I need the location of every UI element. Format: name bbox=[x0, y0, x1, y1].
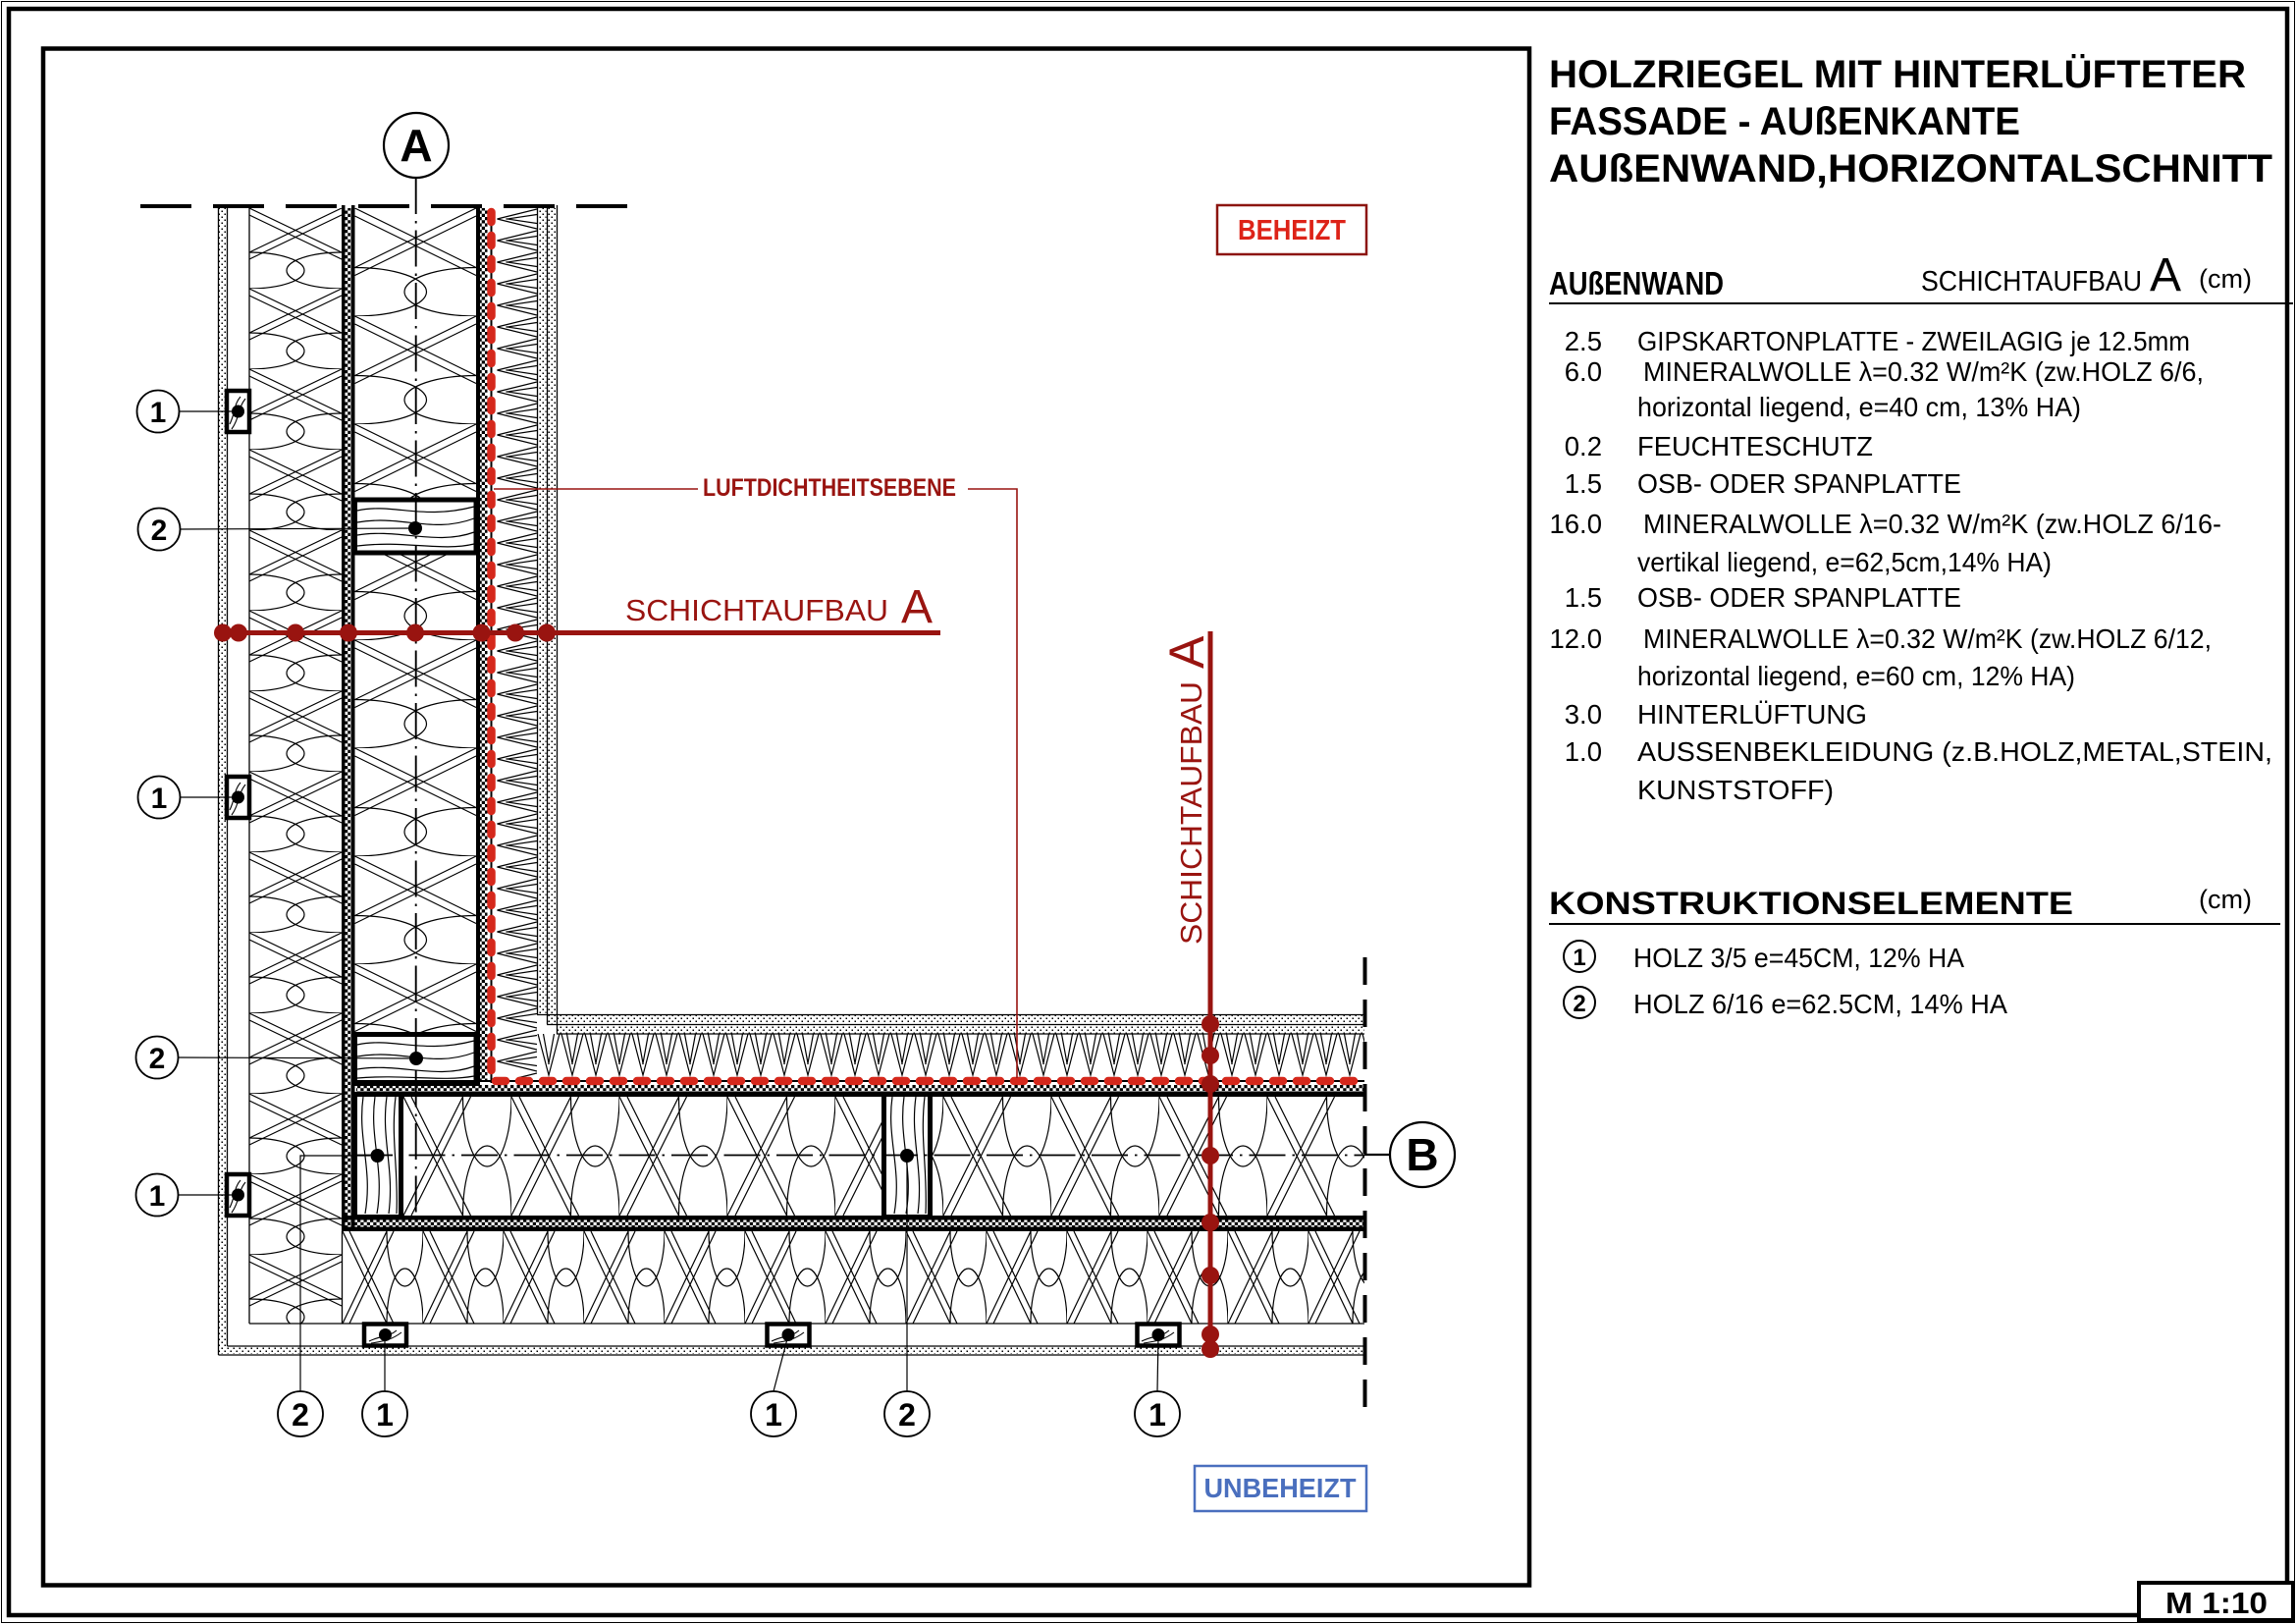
svg-text:OSB- ODER SPANPLATTE: OSB- ODER SPANPLATTE bbox=[1637, 468, 1961, 499]
svg-text:16.0: 16.0 bbox=[1549, 509, 1602, 539]
svg-text:horizontal liegend, e=40 cm, 1: horizontal liegend, e=40 cm, 13% HA) bbox=[1637, 392, 2081, 422]
svg-text:AUSSENBEKLEIDUNG (z.B.HOLZ,MET: AUSSENBEKLEIDUNG (z.B.HOLZ,METAL,STEIN, bbox=[1637, 736, 2272, 767]
svg-text:KUNSTSTOFF): KUNSTSTOFF) bbox=[1637, 775, 1834, 805]
svg-text:A: A bbox=[2150, 249, 2181, 301]
svg-text:AUßENWAND,HORIZONTALSCHNITT: AUßENWAND,HORIZONTALSCHNITT bbox=[1549, 147, 2272, 190]
svg-text:2: 2 bbox=[898, 1397, 916, 1433]
svg-text:vertikal liegend, e=62,5cm,14%: vertikal liegend, e=62,5cm,14% HA) bbox=[1637, 547, 2052, 577]
svg-text:SCHICHTAUFBAU: SCHICHTAUFBAU bbox=[1921, 266, 2142, 298]
svg-text:1: 1 bbox=[765, 1397, 782, 1433]
svg-text:1: 1 bbox=[376, 1397, 394, 1433]
svg-text:A: A bbox=[1159, 635, 1214, 669]
svg-text:A: A bbox=[901, 581, 933, 633]
svg-text:(cm): (cm) bbox=[2199, 264, 2252, 294]
svg-text:SCHICHTAUFBAU: SCHICHTAUFBAU bbox=[1174, 681, 1208, 945]
svg-text:2: 2 bbox=[151, 514, 168, 547]
svg-text:0.2: 0.2 bbox=[1565, 431, 1602, 461]
svg-text:2: 2 bbox=[149, 1043, 166, 1075]
svg-text:1.0: 1.0 bbox=[1565, 736, 1602, 767]
svg-text:UNBEHEIZT: UNBEHEIZT bbox=[1204, 1473, 1357, 1503]
svg-text:HOLZ 3/5 e=45CM, 12% HA: HOLZ 3/5 e=45CM, 12% HA bbox=[1633, 943, 1965, 973]
svg-text:12.0: 12.0 bbox=[1549, 623, 1602, 654]
svg-text:3.0: 3.0 bbox=[1565, 699, 1602, 730]
svg-text:FEUCHTESCHUTZ: FEUCHTESCHUTZ bbox=[1637, 431, 1873, 461]
svg-text:OSB- ODER SPANPLATTE: OSB- ODER SPANPLATTE bbox=[1637, 582, 1961, 613]
svg-text:LUFTDICHTHEITSEBENE: LUFTDICHTHEITSEBENE bbox=[703, 474, 956, 502]
svg-text:1: 1 bbox=[1148, 1397, 1166, 1433]
svg-text:AUßENWAND: AUßENWAND bbox=[1549, 265, 1724, 301]
svg-text:SCHICHTAUFBAU: SCHICHTAUFBAU bbox=[625, 593, 888, 627]
svg-text:2.5: 2.5 bbox=[1565, 326, 1602, 356]
svg-text:KONSTRUKTIONSELEMENTE: KONSTRUKTIONSELEMENTE bbox=[1549, 886, 2073, 921]
svg-text:FASSADE - AUßENKANTE: FASSADE - AUßENKANTE bbox=[1549, 100, 2020, 143]
svg-text:HOLZRIEGEL MIT HINTERLÜFTETER: HOLZRIEGEL MIT HINTERLÜFTETER bbox=[1549, 52, 2246, 96]
svg-text:B: B bbox=[1406, 1129, 1438, 1180]
svg-text:BEHEIZT: BEHEIZT bbox=[1238, 215, 1346, 246]
svg-text:M 1:10: M 1:10 bbox=[2165, 1586, 2268, 1620]
svg-text:A: A bbox=[400, 120, 432, 171]
svg-text:GIPSKARTONPLATTE - ZWEILAGIG j: GIPSKARTONPLATTE - ZWEILAGIG je 12.5mm bbox=[1637, 326, 2190, 356]
svg-text:horizontal liegend, e=60 cm, 1: horizontal liegend, e=60 cm, 12% HA) bbox=[1637, 661, 2075, 691]
svg-text:HOLZ 6/16 e=62.5CM, 14% HA: HOLZ 6/16 e=62.5CM, 14% HA bbox=[1633, 989, 2008, 1019]
svg-text:1.5: 1.5 bbox=[1565, 468, 1602, 499]
svg-text:HINTERLÜFTUNG: HINTERLÜFTUNG bbox=[1637, 699, 1867, 730]
svg-text:1: 1 bbox=[149, 1180, 166, 1213]
svg-text:MINERALWOLLE λ=0.32 W/m²K (zw.: MINERALWOLLE λ=0.32 W/m²K (zw.HOLZ 6/6, bbox=[1643, 356, 2204, 387]
svg-text:2: 2 bbox=[292, 1397, 309, 1433]
svg-text:1: 1 bbox=[1573, 945, 1585, 971]
svg-text:1: 1 bbox=[151, 783, 168, 815]
svg-text:MINERALWOLLE λ=0.32 W/m²K (zw.: MINERALWOLLE λ=0.32 W/m²K (zw.HOLZ 6/16- bbox=[1643, 509, 2221, 539]
svg-text:2: 2 bbox=[1573, 991, 1585, 1017]
svg-text:1: 1 bbox=[150, 397, 167, 429]
svg-text:MINERALWOLLE λ=0.32 W/m²K (zw.: MINERALWOLLE λ=0.32 W/m²K (zw.HOLZ 6/12, bbox=[1643, 623, 2212, 654]
svg-text:6.0: 6.0 bbox=[1565, 356, 1602, 387]
svg-text:1.5: 1.5 bbox=[1565, 582, 1602, 613]
svg-text:(cm): (cm) bbox=[2199, 885, 2252, 914]
